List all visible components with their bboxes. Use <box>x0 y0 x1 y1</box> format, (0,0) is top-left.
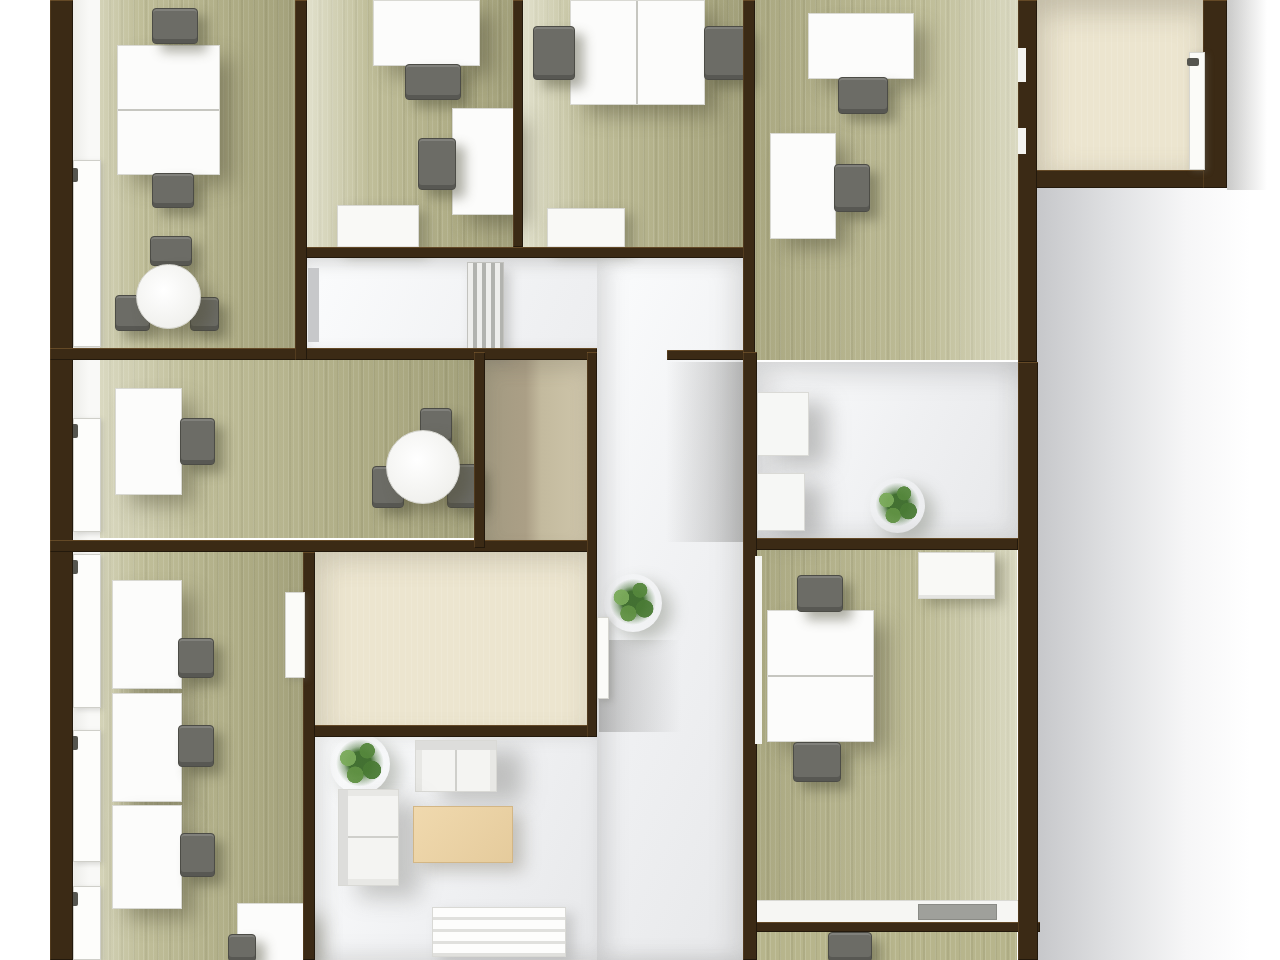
hallway-door <box>597 617 609 699</box>
room3-chair-left <box>533 26 575 80</box>
exterior-shadow-corner <box>1227 0 1267 190</box>
window-frame-3 <box>73 554 101 708</box>
room5-desk-chair <box>180 418 215 465</box>
room8-double-desk <box>767 610 874 742</box>
storage-room-floor <box>485 360 587 540</box>
room3-double-desk <box>570 0 705 105</box>
room7-shelf-upper <box>757 392 809 456</box>
wall-h-mid-lower-left <box>50 540 597 552</box>
room5-round-table <box>386 430 460 504</box>
hallway-plant <box>604 574 662 632</box>
window-frame-4 <box>73 730 101 862</box>
room4-desk-side <box>770 133 836 239</box>
room8-window-sliver <box>755 556 762 744</box>
room4-desk-side-chair <box>834 164 870 212</box>
wall-h-mid-lower-right <box>745 538 1018 550</box>
room2-cabinet <box>337 205 419 250</box>
floor-plan <box>0 0 1280 960</box>
room5-desk <box>115 388 182 495</box>
wall-v-room3-right <box>743 0 755 362</box>
room6-desk-3 <box>112 805 182 909</box>
wall-v-room8-right <box>1018 362 1038 960</box>
room4-desk-top-chair <box>838 77 888 114</box>
room1-desk <box>117 45 220 175</box>
wall-v-room5-right <box>474 352 485 548</box>
room8-chair-top <box>797 575 843 612</box>
room6-desk-2 <box>112 693 182 802</box>
room1-table-chair-north <box>150 236 192 266</box>
wall-v-room1-right <box>295 0 307 360</box>
wall-h-top-rooms-bottom <box>295 247 755 258</box>
cream-room-floor <box>315 552 587 733</box>
room2-desk-top-chair <box>405 64 461 100</box>
room1-desk-chair-bottom <box>152 173 194 208</box>
room6-desk-1-chair <box>178 638 214 678</box>
room8-chair-bottom <box>793 742 841 782</box>
room4-window-sliver-1 <box>1018 48 1026 82</box>
corridor-door <box>308 268 319 342</box>
wall-v-storage-right <box>587 352 597 737</box>
room1-round-table <box>136 264 201 329</box>
room7-plant <box>870 478 925 533</box>
room6-door <box>285 592 305 678</box>
room8-cabinet <box>918 552 995 599</box>
hallway-wall-shadow-upper <box>666 362 743 542</box>
lounge-armchair <box>338 789 399 886</box>
wall-h-cream-room-bottom <box>307 725 597 737</box>
room6-desk-3-chair <box>180 833 215 877</box>
wall-h-room8-bottom <box>745 922 1040 932</box>
lounge-coffee-table <box>413 806 513 863</box>
room7-shelf-lower <box>757 473 805 531</box>
hallway-wall-shadow-lower <box>599 640 681 732</box>
room2-desk-side-chair <box>418 138 456 190</box>
lounge-loveseat <box>415 740 497 792</box>
wall-v-room2-right <box>513 0 523 247</box>
room4-desk-top <box>808 13 914 79</box>
wall-h-corner-room-bottom <box>1033 170 1227 188</box>
room3-cabinet <box>547 208 625 250</box>
lounge-bench <box>432 907 566 957</box>
corner-room-door <box>1189 52 1205 170</box>
room1-desk-chair-top <box>152 8 198 44</box>
corner-room-door-handle <box>1187 58 1199 66</box>
wall-h-mid-upper-left <box>50 348 597 360</box>
room8-counter-tray <box>918 904 997 920</box>
wall-outer-left <box>50 0 73 960</box>
wall-v-corner-room-right <box>1203 0 1227 188</box>
corner-room-floor <box>1033 0 1203 170</box>
room6-desk-1 <box>112 580 182 689</box>
room9-floor <box>755 932 1017 960</box>
window-frame-1 <box>73 160 101 347</box>
room6-desk-2-chair <box>178 725 214 767</box>
wall-h-mid-upper-right <box>667 350 755 360</box>
room9-chair <box>828 932 872 960</box>
corridor-radiator <box>467 262 504 352</box>
room6-desk-4-chair <box>228 934 256 960</box>
lounge-plant <box>330 734 390 794</box>
room2-desk-top <box>373 0 480 66</box>
room4-window-sliver-2 <box>1018 128 1026 154</box>
room2-desk-side <box>452 108 515 215</box>
room3-chair-right <box>704 26 747 80</box>
